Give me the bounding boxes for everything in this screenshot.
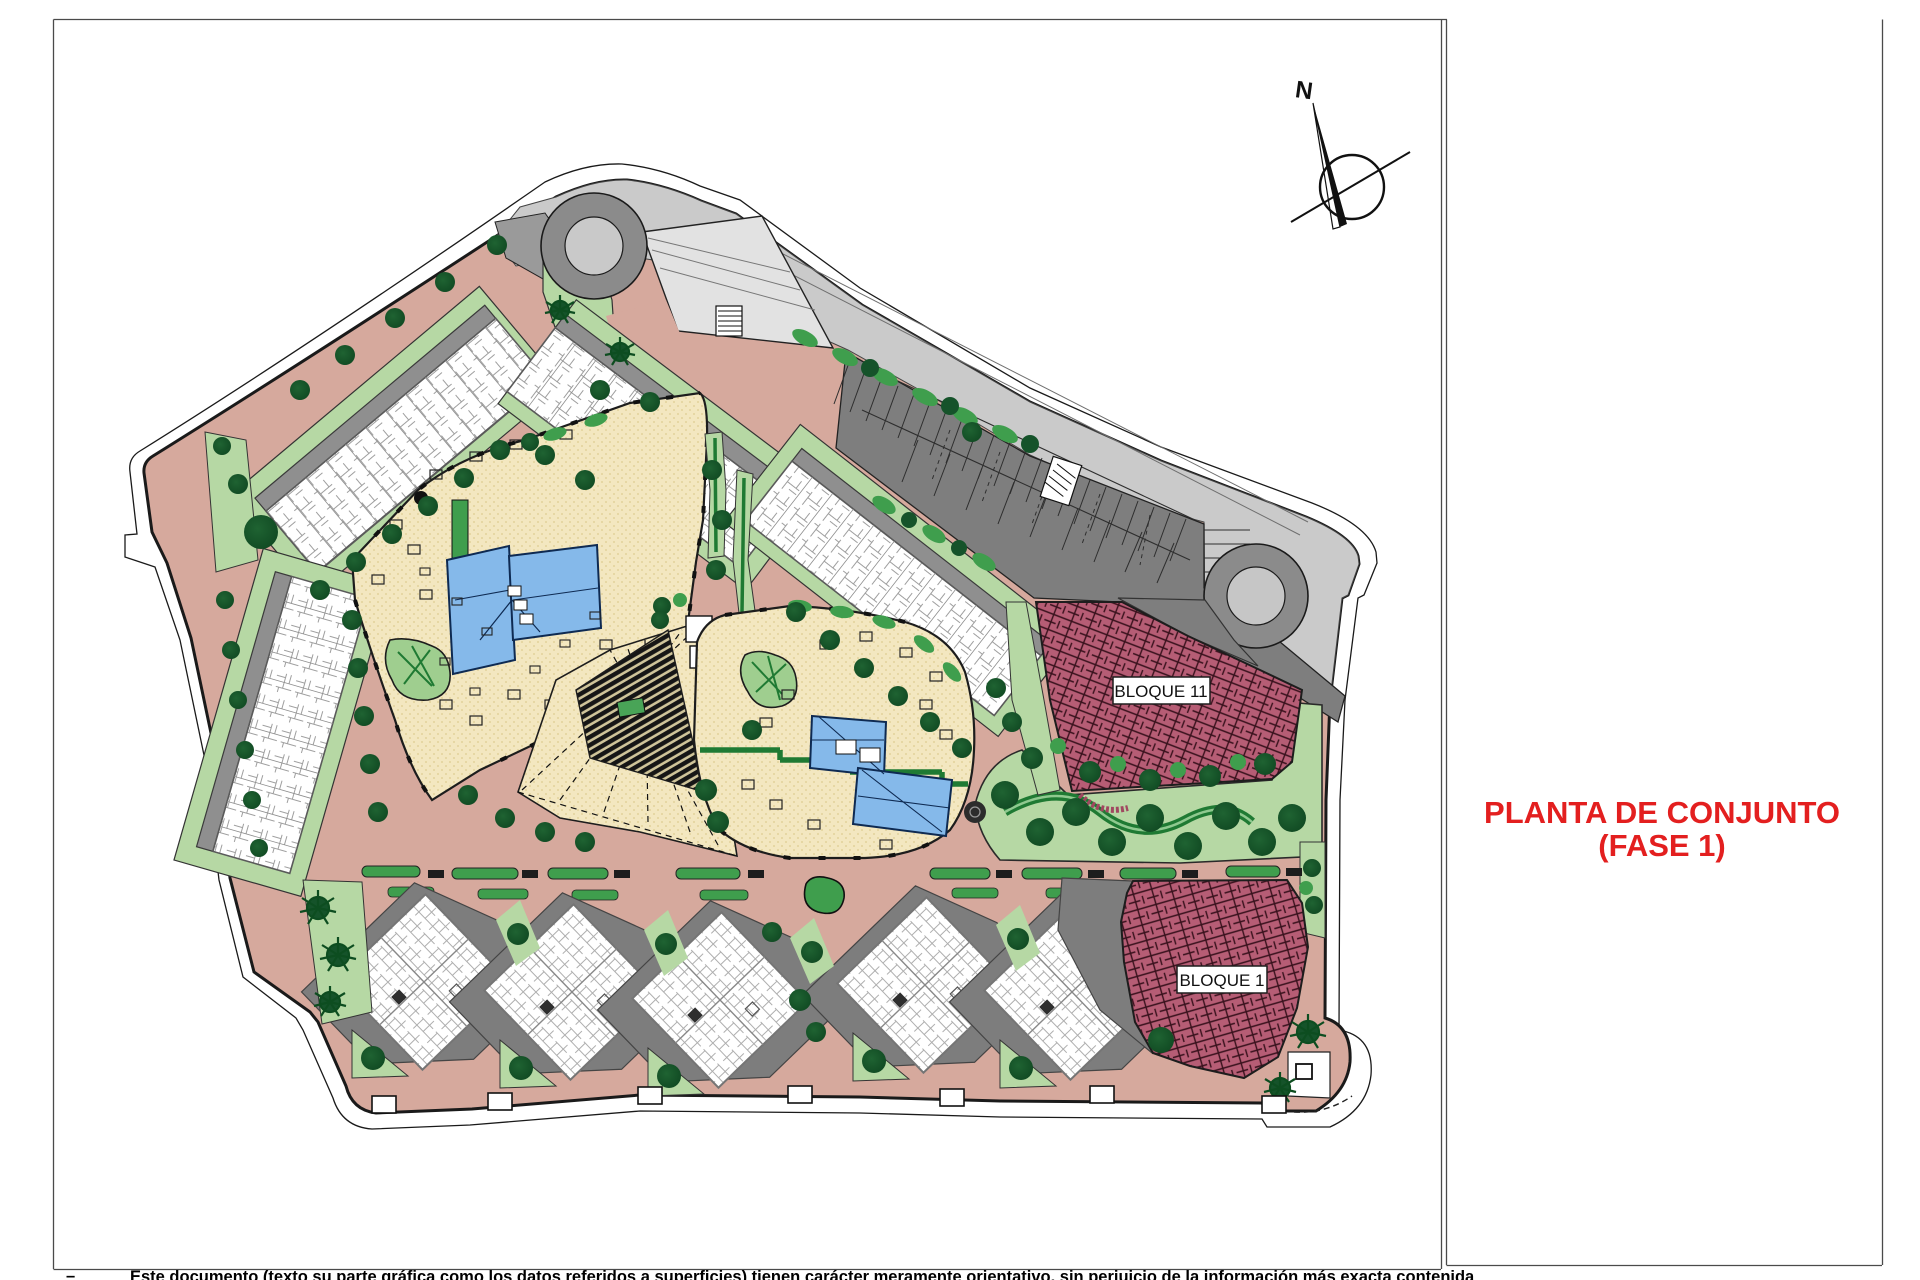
svg-text:BLOQUE 11: BLOQUE 11 [1114, 682, 1207, 701]
svg-text:BLOQUE 1: BLOQUE 1 [1179, 971, 1264, 990]
svg-text:N: N [1294, 76, 1315, 105]
